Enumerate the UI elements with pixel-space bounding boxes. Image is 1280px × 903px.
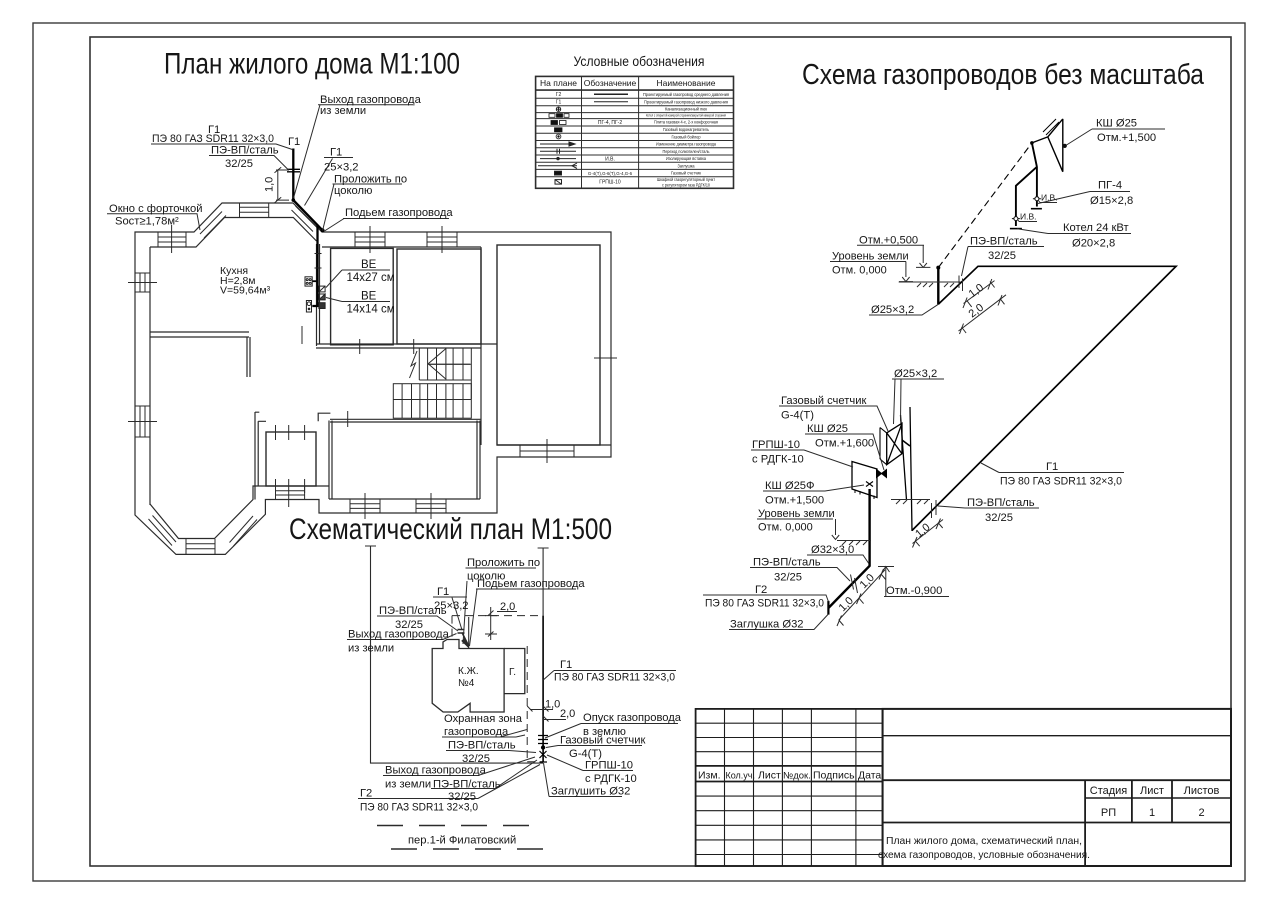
- svg-text:Г2: Г2: [360, 788, 372, 800]
- svg-text:из земли: из земли: [320, 105, 366, 117]
- svg-text:Газовый счетчик: Газовый счетчик: [560, 735, 645, 747]
- svg-text:Отм.+1,500: Отм.+1,500: [765, 495, 824, 507]
- svg-text:К.Ж.: К.Ж.: [458, 666, 479, 677]
- svg-text:№4: №4: [458, 678, 475, 689]
- svg-text:На плане: На плане: [540, 78, 577, 88]
- svg-text:32/25: 32/25: [988, 250, 1016, 262]
- svg-text:Газовый водонагреватель: Газовый водонагреватель: [663, 127, 710, 132]
- svg-text:Кол.уч.: Кол.уч.: [726, 771, 756, 781]
- svg-text:14х27 см: 14х27 см: [347, 272, 395, 284]
- svg-text:Г1: Г1: [556, 100, 562, 106]
- svg-text:Ø20×2,8: Ø20×2,8: [1072, 238, 1115, 250]
- svg-text:ВЕ: ВЕ: [361, 259, 377, 271]
- svg-text:Ø25×3,2: Ø25×3,2: [871, 304, 914, 316]
- svg-text:Г.: Г.: [509, 667, 516, 678]
- svg-text:Проложить по: Проложить по: [467, 557, 540, 569]
- svg-text:1,0: 1,0: [545, 699, 560, 711]
- svg-text:Лист: Лист: [758, 770, 781, 782]
- svg-text:Г2: Г2: [556, 92, 562, 98]
- svg-text:Окно с форточкой: Окно с форточкой: [109, 203, 203, 215]
- svg-text:План жилого дома М1:100: План жилого дома М1:100: [164, 48, 460, 81]
- svg-text:Листов: Листов: [1184, 785, 1220, 797]
- svg-text:2,0: 2,0: [560, 708, 575, 720]
- svg-text:Г1: Г1: [288, 136, 300, 148]
- svg-text:Выход газопровода: Выход газопровода: [385, 765, 487, 777]
- svg-text:ПЭ-ВП/сталь: ПЭ-ВП/сталь: [433, 779, 501, 791]
- svg-text:Шкафной газорегуляторный пункт: Шкафной газорегуляторный пункт: [657, 177, 715, 182]
- svg-text:Заглушка: Заглушка: [678, 163, 696, 168]
- svg-text:1: 1: [1149, 807, 1155, 819]
- svg-text:Ø32×3,0: Ø32×3,0: [811, 544, 854, 556]
- svg-text:25×3,2: 25×3,2: [324, 162, 359, 174]
- svg-text:Канализационный люк: Канализационный люк: [665, 107, 707, 112]
- svg-text:№док.: №док.: [783, 771, 811, 782]
- svg-text:Выход газопровода: Выход газопровода: [348, 629, 450, 641]
- svg-text:Охранная зона: Охранная зона: [444, 713, 523, 725]
- svg-text:План жилого дома, схематическ: План жилого дома, схематический план,: [886, 835, 1082, 847]
- svg-text:2: 2: [1198, 807, 1204, 819]
- svg-text:ПЭ-ВП/сталь: ПЭ-ВП/сталь: [379, 605, 447, 617]
- svg-text:с РДГК-10: с РДГК-10: [752, 454, 804, 466]
- svg-text:ПЭ-ВП/сталь: ПЭ-ВП/сталь: [753, 557, 821, 569]
- svg-text:ВЕ: ВЕ: [361, 291, 377, 303]
- svg-text:Заглушить Ø32: Заглушить Ø32: [551, 786, 630, 798]
- svg-text:ПЭ 80 ГАЗ SDR11 32×3,0: ПЭ 80 ГАЗ SDR11 32×3,0: [152, 133, 274, 145]
- svg-text:Обозначение: Обозначение: [584, 78, 637, 88]
- svg-text:И.В.: И.В.: [1041, 193, 1058, 203]
- svg-text:Изменение диаметра газопровода: Изменение диаметра газопровода: [656, 142, 717, 147]
- svg-text:Дата: Дата: [858, 770, 881, 782]
- svg-text:КШ Ø25Ф: КШ Ø25Ф: [765, 480, 815, 492]
- svg-text:Отм. 0,000: Отм. 0,000: [832, 265, 887, 277]
- svg-text:Схематический план М1:500: Схематический план М1:500: [289, 513, 612, 546]
- svg-text:ГРПШ-10: ГРПШ-10: [752, 439, 800, 451]
- svg-text:1,0: 1,0: [264, 177, 276, 192]
- svg-text:ПГ-4, ПГ-2: ПГ-4, ПГ-2: [598, 120, 622, 126]
- svg-text:Ø25×3,2: Ø25×3,2: [894, 368, 937, 380]
- svg-text:Газовый счетчик: Газовый счетчик: [781, 395, 866, 407]
- svg-text:Лист: Лист: [1140, 785, 1164, 797]
- svg-text:Ø15×2,8: Ø15×2,8: [1090, 195, 1133, 207]
- svg-text:Газовый счетчик: Газовый счетчик: [671, 171, 701, 176]
- svg-text:Проектируемый газопровод средн: Проектируемый газопровод среднего давлен…: [643, 92, 730, 97]
- svg-text:Подпись: Подпись: [813, 770, 855, 782]
- svg-text:ПЭ-ВП/сталь: ПЭ-ВП/сталь: [211, 145, 279, 157]
- svg-text:РП: РП: [1101, 807, 1116, 819]
- svg-text:Котел 24 кВт: Котел 24 кВт: [1063, 222, 1129, 234]
- svg-text:Схема газопроводов без масштаб: Схема газопроводов без масштаба: [802, 59, 1204, 91]
- svg-text:Изм.: Изм.: [698, 770, 721, 782]
- svg-text:2,0: 2,0: [500, 601, 515, 613]
- svg-text:Проложить по: Проложить по: [334, 174, 407, 186]
- svg-text:G-4(Т): G-4(Т): [781, 410, 814, 422]
- svg-text:ПГ-4: ПГ-4: [1098, 180, 1122, 192]
- svg-text:ГРПШ-10: ГРПШ-10: [599, 180, 621, 186]
- svg-text:Газовый бойлер: Газовый бойлер: [672, 134, 702, 139]
- svg-text:пер.1-й Филатовский: пер.1-й Филатовский: [408, 835, 516, 847]
- svg-text:32/25: 32/25: [225, 158, 253, 170]
- svg-text:Изолирующая вставка: Изолирующая вставка: [666, 156, 707, 161]
- svg-text:И.В.: И.В.: [1020, 212, 1037, 222]
- svg-text:14х14 см: 14х14 см: [347, 304, 395, 316]
- svg-text:Уровень земли: Уровень земли: [758, 508, 835, 520]
- svg-text:Проектируемый газопровод низко: Проектируемый газопровод низкого давлени…: [644, 100, 729, 105]
- svg-text:Отм.+1,600: Отм.+1,600: [815, 438, 874, 450]
- svg-text:Стадия: Стадия: [1090, 785, 1128, 797]
- svg-text:Переход полиэтилен/сталь: Переход полиэтилен/сталь: [663, 149, 711, 154]
- svg-text:КШ Ø25: КШ Ø25: [1096, 118, 1137, 130]
- svg-text:Г1: Г1: [560, 659, 572, 671]
- svg-text:Г1: Г1: [437, 586, 449, 598]
- svg-text:ПЭ-ВП/сталь: ПЭ-ВП/сталь: [448, 740, 516, 752]
- svg-text:Отм. 0,000: Отм. 0,000: [758, 522, 813, 534]
- svg-text:Г2: Г2: [755, 584, 767, 596]
- svg-text:Sост≥1,78м²: Sост≥1,78м²: [115, 216, 179, 228]
- svg-text:Подьем газопровода: Подьем газопровода: [477, 578, 585, 590]
- svg-text:Уровень земли: Уровень земли: [832, 251, 909, 263]
- svg-text:с регулятором газа РДГК/10: с регулятором газа РДГК/10: [662, 182, 711, 187]
- svg-text:из земли: из земли: [385, 779, 431, 791]
- svg-text:ГРПШ-10: ГРПШ-10: [585, 760, 633, 772]
- svg-text:И.В.: И.В.: [605, 157, 615, 163]
- svg-text:ПЭ 80 ГАЗ SDR11 32×3,0: ПЭ 80 ГАЗ SDR11 32×3,0: [360, 802, 478, 814]
- svg-text:Условные обозначения: Условные обозначения: [574, 54, 705, 69]
- svg-text:Отм.-0,900: Отм.-0,900: [886, 585, 942, 597]
- svg-text:Г1: Г1: [1046, 461, 1058, 473]
- svg-text:Наименование: Наименование: [657, 78, 716, 88]
- svg-text:ПЭ-ВП/сталь: ПЭ-ВП/сталь: [970, 236, 1038, 248]
- svg-text:Заглушка Ø32: Заглушка Ø32: [730, 619, 804, 631]
- svg-text:Отм.+0,500: Отм.+0,500: [859, 235, 918, 247]
- svg-text:ПЭ 80 ГАЗ SDR11 32×3,0: ПЭ 80 ГАЗ SDR11 32×3,0: [1000, 476, 1122, 488]
- svg-text:цоколю: цоколю: [334, 185, 372, 197]
- svg-text:32/25: 32/25: [985, 512, 1013, 524]
- svg-text:КШ Ø25: КШ Ø25: [807, 423, 848, 435]
- svg-text:Г1: Г1: [330, 147, 342, 159]
- svg-text:Плита газовая 4-х, 2-х конфоро: Плита газовая 4-х, 2-х конфорочная: [654, 120, 719, 125]
- svg-text:с РДГК-10: с РДГК-10: [585, 773, 637, 785]
- svg-text:ПЭ-ВП/сталь: ПЭ-ВП/сталь: [967, 497, 1035, 509]
- svg-text:G-4(Т),G-6(Т),G-4,G-6: G-4(Т),G-6(Т),G-4,G-6: [588, 171, 633, 176]
- svg-text:32/25: 32/25: [774, 572, 802, 584]
- svg-text:Подьем газопровода: Подьем газопровода: [345, 207, 453, 219]
- svg-text:ПЭ 80 ГАЗ SDR11 32×3,0: ПЭ 80 ГАЗ SDR11 32×3,0: [554, 672, 675, 684]
- svg-text:Котел с открытой камерой сгора: Котел с открытой камерой сгорания/закрыт…: [646, 114, 726, 118]
- svg-text:схема газопроводов, условные о: схема газопроводов, условные обозначения…: [878, 849, 1090, 861]
- svg-text:из земли: из земли: [348, 643, 394, 655]
- svg-text:газопровода: газопровода: [444, 726, 509, 738]
- svg-text:32/25: 32/25: [462, 753, 490, 765]
- svg-text:Опуск газопровода: Опуск газопровода: [583, 712, 682, 724]
- svg-text:Отм.+1,500: Отм.+1,500: [1097, 132, 1156, 144]
- svg-text:ПЭ 80 ГАЗ SDR11 32×3,0: ПЭ 80 ГАЗ SDR11 32×3,0: [705, 598, 824, 610]
- svg-text:G-4(Т): G-4(Т): [569, 748, 602, 760]
- svg-text:V=59,64м³: V=59,64м³: [220, 285, 271, 297]
